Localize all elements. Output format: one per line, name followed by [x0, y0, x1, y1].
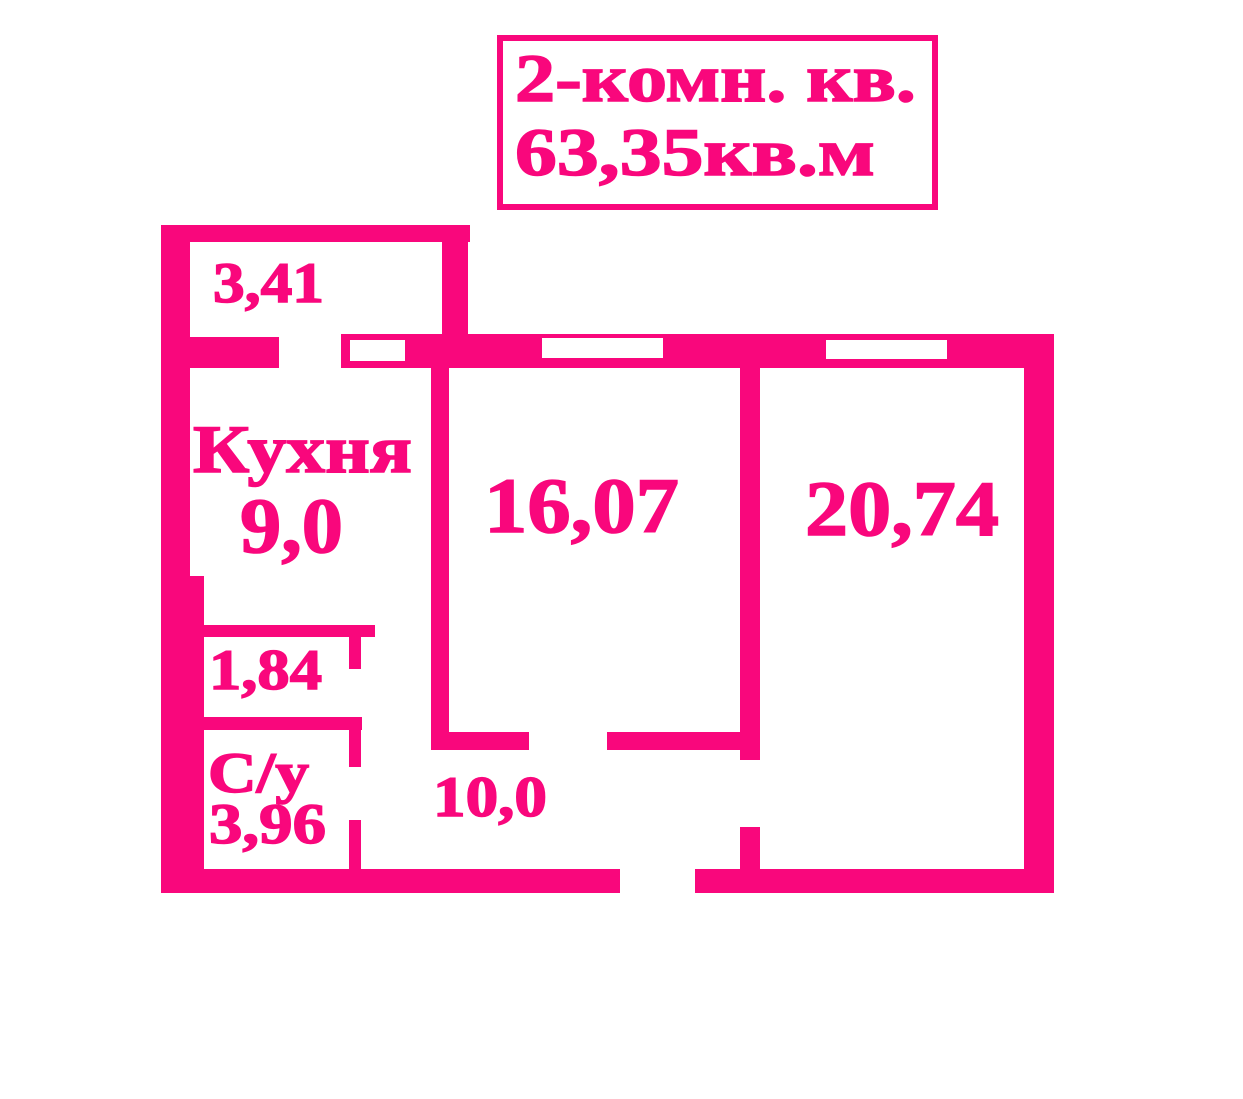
- svg-text:Кухня: Кухня: [193, 411, 412, 487]
- svg-text:1,84: 1,84: [209, 639, 322, 702]
- svg-text:2-комн. кв.: 2-комн. кв.: [515, 40, 916, 116]
- svg-text:3,41: 3,41: [213, 252, 324, 315]
- svg-text:63,35кв.м: 63,35кв.м: [515, 114, 875, 190]
- svg-text:10,0: 10,0: [433, 766, 547, 829]
- svg-text:16,07: 16,07: [484, 462, 679, 549]
- svg-text:9,0: 9,0: [240, 482, 343, 569]
- svg-text:20,74: 20,74: [805, 465, 999, 552]
- svg-text:3,96: 3,96: [209, 793, 326, 856]
